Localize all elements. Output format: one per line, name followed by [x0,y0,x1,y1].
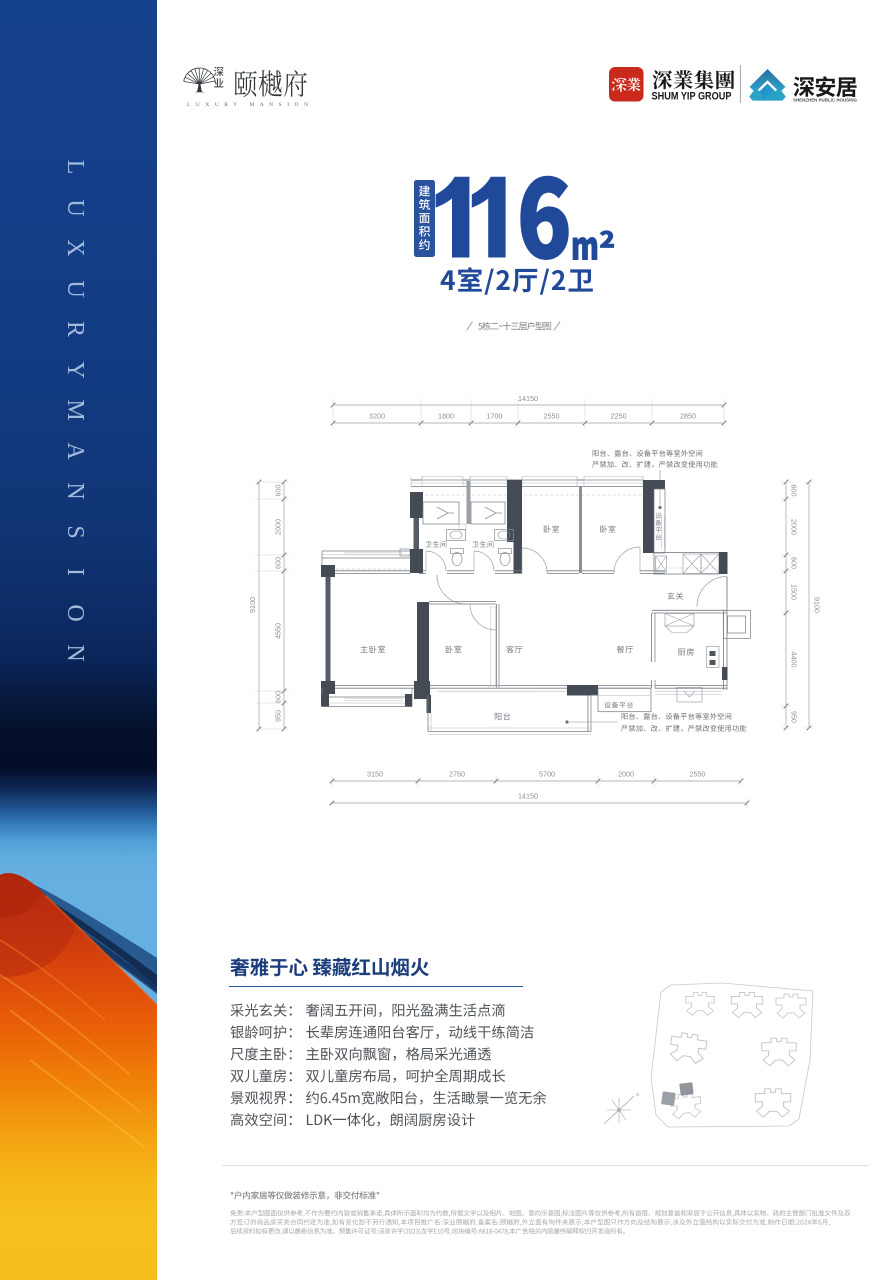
svg-text:14150: 14150 [518,792,538,801]
svg-text:SHENZHEN PUBLIC HOUSING: SHENZHEN PUBLIC HOUSING [793,98,857,103]
svg-text:N: N [636,1092,639,1097]
svg-text:600: 600 [274,557,283,569]
svg-text:950: 950 [790,711,799,723]
svg-text:2850: 2850 [680,412,696,421]
svg-text:LUXURY MANSION: LUXURY MANSION [187,102,308,108]
svg-text:3150: 3150 [367,770,383,779]
svg-text:2550: 2550 [690,770,706,779]
svg-text:2550: 2550 [544,412,560,421]
svg-text:2000: 2000 [274,519,283,535]
svg-text:9100: 9100 [813,597,822,613]
svg-text:1800: 1800 [438,412,454,421]
svg-text:600: 600 [790,557,799,569]
svg-text:600: 600 [274,485,283,497]
svg-text:1700: 1700 [487,412,503,421]
svg-text:3200: 3200 [369,412,385,421]
svg-text:14150: 14150 [518,394,538,403]
svg-text:4550: 4550 [274,623,283,639]
svg-text:1500: 1500 [790,584,799,600]
svg-text:2250: 2250 [611,412,627,421]
svg-text:SHUM YIP GROUP: SHUM YIP GROUP [652,91,732,103]
svg-text:2000: 2000 [618,770,634,779]
svg-text:600: 600 [274,691,283,703]
svg-text:600: 600 [790,485,799,497]
svg-text:950: 950 [274,710,283,722]
svg-text:4400: 4400 [790,652,799,668]
svg-text:2000: 2000 [790,519,799,535]
svg-text:5700: 5700 [539,770,555,779]
svg-text:9100: 9100 [248,597,257,613]
svg-text:2750: 2750 [449,770,465,779]
